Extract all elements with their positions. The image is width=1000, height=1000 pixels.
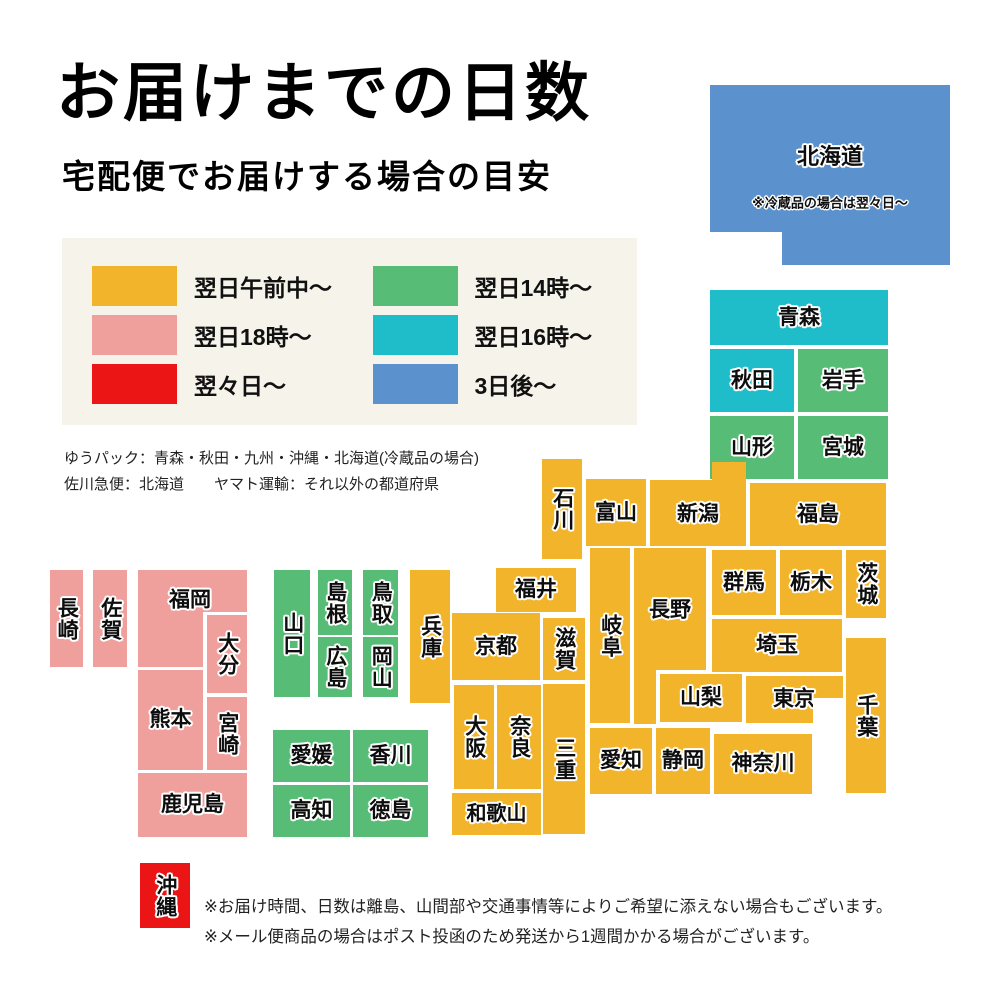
region-label: 静岡: [662, 750, 704, 771]
region-label: 徳島: [370, 800, 412, 821]
region-label: 広島: [324, 645, 345, 689]
map-region-osaka: 大阪: [454, 685, 494, 789]
map-region-fukui: 福井: [496, 568, 576, 612]
map-region-mie: 三重: [543, 684, 585, 834]
map-region-tokyo: 東京: [746, 676, 843, 723]
map-region-nagasaki: 長崎: [50, 570, 83, 667]
map-region-yamaguchi: 山口: [274, 570, 310, 697]
region-label: 群馬: [723, 572, 765, 593]
map-region-akita: 秋田: [710, 349, 794, 412]
region-label: 長野: [649, 599, 691, 620]
map-region-hyogo: 兵庫: [410, 570, 450, 703]
region-label: 和歌山: [467, 804, 527, 824]
region-label: 宮城: [822, 437, 864, 458]
region-label: 福井: [515, 579, 557, 600]
map-region-shimane: 島根: [318, 570, 352, 635]
region-label: 岩手: [822, 370, 864, 391]
map-region-wakayama: 和歌山: [452, 793, 541, 835]
map-region-kagoshima: 鹿児島: [138, 773, 247, 837]
delivery-info-page: お届けまでの日数 宅配便でお届けする場合の目安 翌日午前中〜翌日18時〜翌々日〜…: [0, 0, 1000, 1000]
map-region-ibaraki: 茨城: [846, 550, 886, 618]
region-label: 大阪: [463, 715, 484, 759]
region-label: 青森: [778, 307, 820, 328]
map-region-kanagawa: 神奈川: [714, 734, 812, 794]
region-label: 福島: [797, 504, 839, 525]
region-label: 大分: [216, 632, 237, 676]
map-region-tottori: 鳥取: [363, 570, 398, 635]
map-region-nara: 奈良: [497, 685, 541, 789]
region-label: 岡山: [370, 645, 391, 689]
map-region-aichi: 愛知: [590, 728, 652, 794]
map-region-miyagi: 宮城: [798, 416, 888, 479]
map-region-ishikawa: 石川: [542, 459, 582, 559]
region-label: 三重: [553, 737, 574, 781]
region-label: 岐阜: [599, 614, 620, 658]
region-label: 福岡: [169, 589, 211, 610]
map-region-niigata: 新潟: [650, 462, 746, 546]
map-region-tochigi: 栃木: [780, 550, 842, 615]
map-region-miyazaki: 宮崎: [207, 697, 247, 770]
region-label: 香川: [370, 745, 412, 766]
region-label: 埼玉: [756, 635, 798, 656]
map-region-hokkaido: 北海道※冷蔵品の場合は翌々日〜: [710, 85, 950, 265]
region-label: 熊本: [150, 709, 192, 730]
map-region-kumamoto: 熊本: [138, 670, 203, 770]
map-region-aomori: 青森: [710, 290, 888, 345]
region-label: 佐賀: [99, 597, 120, 641]
map-region-saitama: 埼玉: [712, 619, 842, 672]
note-line: ※お届け時間、日数は離島、山間部や交通事情等によりご希望に添えない場合もございま…: [204, 892, 892, 922]
region-label: 秋田: [731, 370, 773, 391]
map-region-okayama: 岡山: [363, 637, 398, 697]
map-region-kagawa: 香川: [353, 730, 428, 782]
map-region-chiba: 千葉: [846, 638, 886, 793]
map-region-ehime: 愛媛: [273, 730, 350, 782]
map-region-shiga: 滋賀: [543, 618, 585, 680]
region-label: 東京: [773, 688, 815, 709]
region-label: 山口: [281, 612, 302, 656]
region-label: 奈良: [508, 715, 529, 759]
region-label: 高知: [291, 800, 333, 821]
footer-notes: ※お届け時間、日数は離島、山間部や交通事情等によりご希望に添えない場合もございま…: [204, 892, 892, 952]
region-label: 愛知: [600, 750, 642, 771]
map-region-saga: 佐賀: [93, 570, 127, 667]
region-label: 愛媛: [291, 745, 333, 766]
map-region-kochi: 高知: [273, 785, 350, 837]
japan-map: 北海道※冷蔵品の場合は翌々日〜青森秋田岩手山形宮城石川富山新潟福島群馬栃木茨城埼…: [0, 0, 1000, 1000]
map-region-tokushima: 徳島: [353, 785, 428, 837]
region-label: 滋賀: [553, 627, 574, 671]
map-region-iwate: 岩手: [798, 349, 888, 412]
region-label: 沖縄: [154, 874, 175, 918]
region-label: 宮崎: [216, 712, 237, 756]
region-label: 鹿児島: [161, 794, 224, 815]
region-label: 石川: [551, 487, 572, 531]
region-label: 北海道: [797, 146, 863, 168]
map-region-gunma: 群馬: [712, 550, 776, 615]
map-region-shizuoka: 静岡: [656, 728, 710, 794]
region-label: 鳥取: [370, 581, 391, 625]
hokkaido-note: ※冷蔵品の場合は翌々日〜: [752, 193, 908, 212]
region-label: 兵庫: [419, 615, 440, 659]
region-label: 新潟: [677, 503, 719, 524]
region-label: 山梨: [680, 687, 722, 708]
region-label: 長崎: [56, 597, 77, 641]
map-region-yamanashi: 山梨: [660, 674, 742, 722]
map-region-toyama: 富山: [586, 479, 646, 546]
region-label: 山形: [731, 437, 773, 458]
region-label: 神奈川: [732, 753, 795, 774]
note-line: ※メール便商品の場合はポスト投函のため発送から1週間かかる場合がございます。: [204, 922, 892, 952]
map-region-gifu: 岐阜: [590, 548, 630, 723]
map-region-kyoto: 京都: [452, 613, 540, 680]
region-label: 富山: [595, 502, 637, 523]
region-label: 千葉: [855, 694, 876, 738]
region-label: 島根: [324, 581, 345, 625]
map-region-hiroshima: 広島: [318, 637, 352, 697]
region-label: 栃木: [790, 572, 832, 593]
map-region-oita: 大分: [207, 615, 247, 693]
map-region-okinawa: 沖縄: [140, 863, 190, 928]
region-label: 京都: [475, 636, 517, 657]
region-label: 茨城: [855, 562, 876, 606]
map-region-fukushima: 福島: [750, 483, 886, 546]
